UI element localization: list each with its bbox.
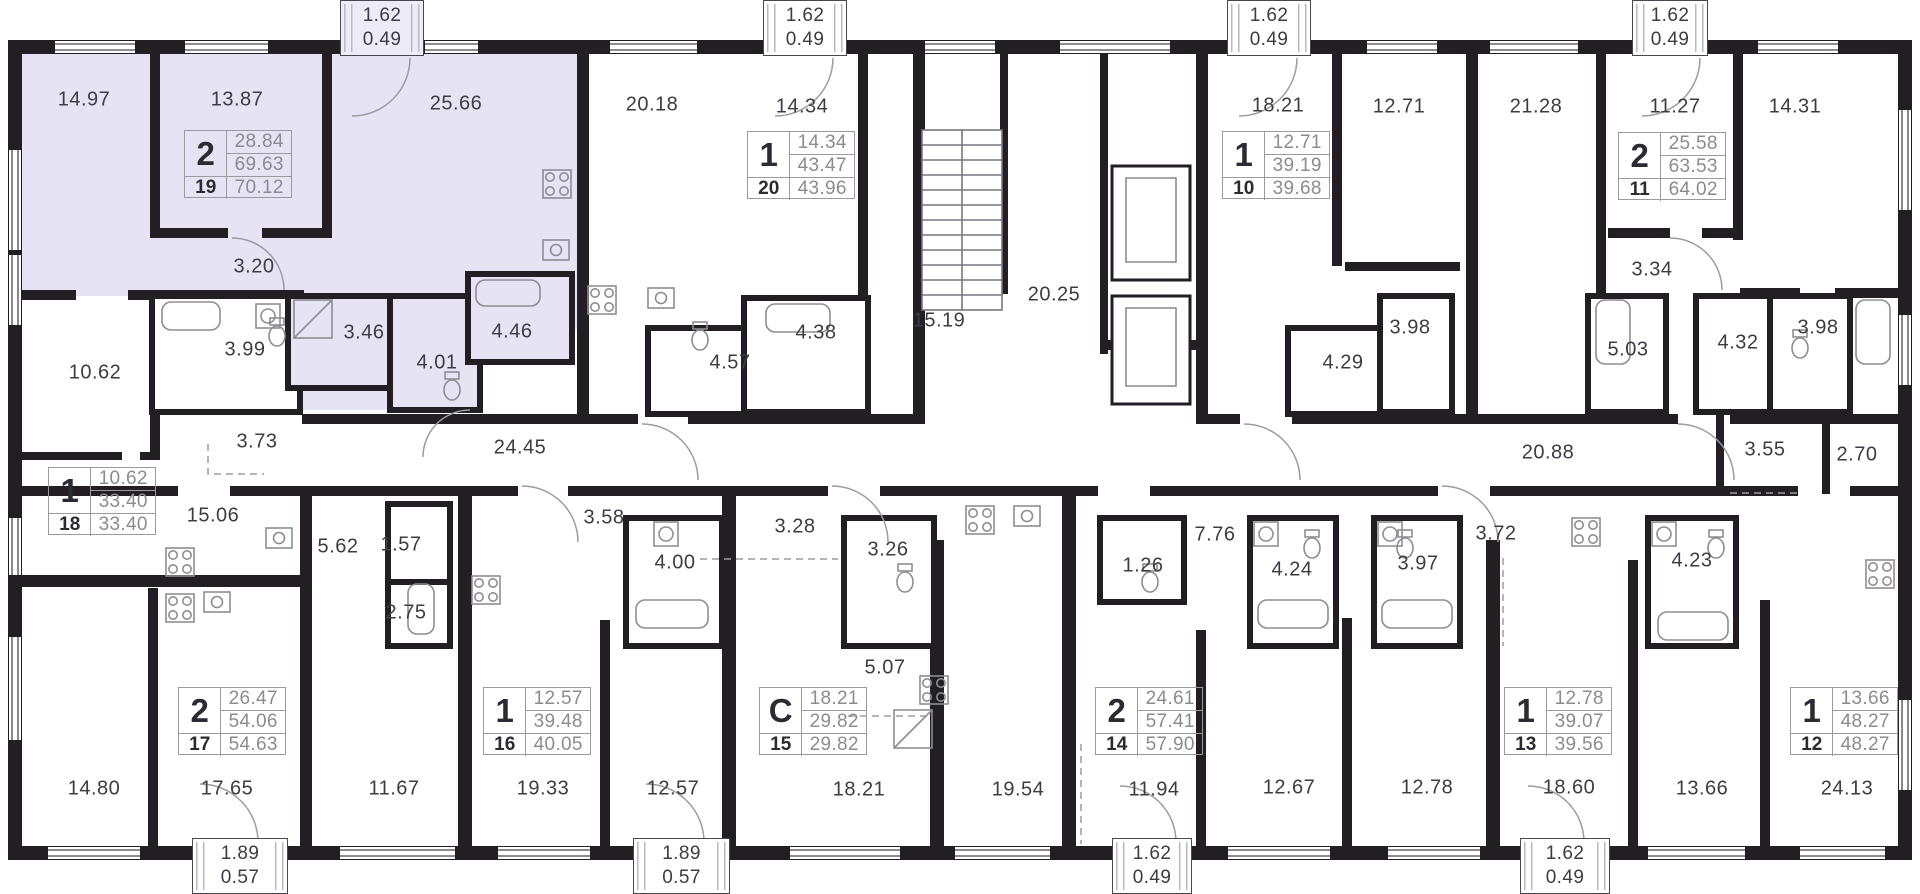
total-area: 43.96 — [790, 178, 854, 200]
apartment-number: 18 — [49, 514, 91, 536]
room-area-label: 3.20 — [234, 256, 275, 279]
balcony-area: 1.62 — [1546, 842, 1585, 866]
room-area-label: 19.33 — [517, 778, 570, 801]
rooms-count: 1 — [748, 132, 790, 178]
balcony-area: 1.62 — [786, 4, 825, 28]
room-area-label: 24.13 — [1821, 778, 1874, 801]
apartment-info-table: 113.6648.271248.27 — [1790, 687, 1898, 755]
balcony-area-box: 1.890.57 — [633, 838, 730, 894]
room-area-label: 3.34 — [1632, 259, 1673, 282]
living-area: 14.34 — [790, 132, 854, 155]
balcony-reduced-area: 0.49 — [1133, 866, 1172, 890]
room-area-label: 3.28 — [775, 516, 816, 539]
room-area-label: 3.98 — [1390, 317, 1431, 340]
rooms-count: 1 — [49, 468, 91, 514]
area-no-balcony: 39.19 — [1265, 155, 1329, 178]
room-area-label: 20.18 — [626, 94, 679, 117]
balcony-reduced-area: 0.49 — [1546, 866, 1585, 890]
room-area-label: 25.66 — [430, 93, 483, 116]
room-area-label: 4.29 — [1323, 352, 1364, 375]
elevators — [1112, 166, 1190, 404]
room-area-label: 5.62 — [318, 536, 359, 559]
balcony-area: 1.62 — [363, 4, 402, 28]
living-area: 12.78 — [1547, 688, 1611, 711]
room-area-label: 3.99 — [225, 339, 266, 362]
room-area-label: 18.21 — [1252, 95, 1305, 118]
total-area: 33.40 — [91, 514, 155, 536]
room-area-label: 21.28 — [1510, 96, 1563, 119]
room-area-label: 3.98 — [1798, 317, 1839, 340]
balcony-area-box: 1.620.49 — [763, 0, 847, 56]
room-area-label: 5.03 — [1608, 339, 1649, 362]
area-no-balcony: 39.07 — [1547, 711, 1611, 734]
apartment-info-table: 224.6157.411457.90 — [1095, 687, 1203, 755]
apartment-number: 17 — [179, 734, 221, 756]
room-area-label: 3.26 — [868, 539, 909, 562]
living-area: 25.58 — [1661, 133, 1725, 156]
room-area-label: 2.75 — [386, 602, 427, 625]
room-area-label: 4.32 — [1718, 332, 1759, 355]
room-area-label: 2.70 — [1837, 444, 1878, 467]
balcony-reduced-area: 0.49 — [363, 28, 402, 52]
balcony-area: 1.62 — [1250, 4, 1289, 28]
room-area-label: 14.80 — [68, 778, 121, 801]
room-area-label: 14.34 — [776, 96, 829, 119]
living-area: 12.57 — [526, 688, 590, 711]
balcony-area: 1.89 — [662, 842, 701, 866]
apartment-number: 15 — [760, 734, 802, 756]
balcony-area-box: 1.620.49 — [1632, 0, 1708, 56]
room-area-label: 11.27 — [1649, 96, 1700, 119]
balcony-area: 1.62 — [1133, 842, 1172, 866]
apartment-number: 11 — [1619, 179, 1661, 201]
balcony-area-box: 1.890.57 — [192, 838, 288, 894]
apartment-number: 14 — [1096, 734, 1138, 756]
apartment-info-table: 112.7839.071339.56 — [1504, 687, 1612, 755]
room-area-label: 20.25 — [1028, 284, 1081, 307]
room-area-label: 3.55 — [1745, 439, 1786, 462]
rooms-count: 2 — [1096, 688, 1138, 734]
balcony-reduced-area: 0.57 — [221, 866, 260, 890]
apartment-info-table: 112.7139.191039.68 — [1222, 131, 1330, 199]
room-area-label: 18.21 — [833, 779, 886, 802]
apartment-info-table: 114.3443.472043.96 — [747, 131, 855, 199]
balcony-area: 1.89 — [221, 842, 260, 866]
room-area-label: 17.65 — [201, 778, 254, 801]
area-no-balcony: 43.47 — [790, 155, 854, 178]
rooms-count: 2 — [185, 131, 227, 177]
rooms-count: 1 — [1223, 132, 1265, 178]
room-area-label: 3.97 — [1398, 553, 1439, 576]
room-area-label: 4.38 — [796, 322, 837, 345]
area-no-balcony: 54.06 — [221, 711, 285, 734]
balcony-area-box: 1.620.49 — [1227, 0, 1311, 56]
balcony-area-box: 1.620.49 — [1520, 838, 1610, 894]
balcony-reduced-area: 0.57 — [662, 866, 701, 890]
balcony-area-box: 1.620.49 — [340, 0, 424, 56]
total-area: 39.56 — [1547, 734, 1611, 756]
living-area: 18.21 — [802, 688, 866, 711]
apartment-number: 12 — [1791, 734, 1833, 756]
room-area-label: 18.60 — [1543, 777, 1596, 800]
apartment-info-table: 112.5739.481640.05 — [483, 687, 591, 755]
area-no-balcony: 39.48 — [526, 711, 590, 734]
room-area-label: 4.01 — [417, 352, 458, 375]
room-area-label: 14.31 — [1769, 96, 1822, 119]
rooms-count: 2 — [1619, 133, 1661, 179]
room-area-label: 12.67 — [1263, 777, 1316, 800]
living-area: 10.62 — [91, 468, 155, 491]
room-area-label: 4.24 — [1272, 559, 1313, 582]
apartment-number: 20 — [748, 178, 790, 200]
room-area-label: 1.57 — [381, 534, 422, 557]
balcony-reduced-area: 0.49 — [1250, 28, 1289, 52]
apartment-info-table: 228.8469.631970.12 — [184, 130, 292, 198]
total-area: 40.05 — [526, 734, 590, 756]
room-area-label: 4.46 — [492, 321, 533, 344]
area-no-balcony: 63.53 — [1661, 156, 1725, 179]
room-area-label: 3.46 — [344, 322, 385, 345]
room-area-label: 12.78 — [1401, 777, 1454, 800]
area-no-balcony: 48.27 — [1833, 711, 1897, 734]
balcony-reduced-area: 0.49 — [1651, 28, 1690, 52]
room-area-label: 11.94 — [1128, 779, 1179, 802]
room-area-label: 4.57 — [710, 352, 751, 375]
living-area: 24.61 — [1138, 688, 1202, 711]
floor-plan: 14.9713.8725.6620.1814.3415.1920.2518.21… — [0, 0, 1920, 894]
rooms-count: 1 — [484, 688, 526, 734]
balcony-area-box: 1.620.49 — [1112, 838, 1192, 894]
living-area: 12.71 — [1265, 132, 1329, 155]
room-area-label: 11.67 — [368, 778, 419, 801]
living-area: 13.66 — [1833, 688, 1897, 711]
rooms-count: 1 — [1791, 688, 1833, 734]
rooms-count: 2 — [179, 688, 221, 734]
room-area-label: 15.19 — [913, 310, 966, 333]
room-area-label: 10.62 — [69, 362, 122, 385]
floor-plan-page: { "plan": { "wall_color": "#221e24", "hi… — [0, 0, 1920, 894]
total-area: 39.68 — [1265, 178, 1329, 200]
rooms-count: C — [760, 688, 802, 734]
room-area-label: 12.57 — [647, 778, 700, 801]
room-area-label: 7.76 — [1195, 524, 1236, 547]
room-area-label: 13.87 — [211, 89, 264, 112]
balcony-reduced-area: 0.49 — [786, 28, 825, 52]
living-area: 26.47 — [221, 688, 285, 711]
room-area-label: 3.73 — [237, 431, 278, 454]
apartment-info-table: 225.5863.531164.02 — [1618, 132, 1726, 200]
apartment-number: 16 — [484, 734, 526, 756]
room-area-label: 4.00 — [655, 552, 696, 575]
total-area: 57.90 — [1138, 734, 1202, 756]
room-area-label: 5.07 — [865, 657, 906, 680]
room-area-label: 20.88 — [1522, 442, 1575, 465]
rooms-count: 1 — [1505, 688, 1547, 734]
room-area-label: 3.58 — [584, 507, 625, 530]
room-area-label: 1.26 — [1123, 555, 1164, 578]
room-area-label: 19.54 — [992, 779, 1045, 802]
room-area-label: 13.66 — [1676, 778, 1729, 801]
room-area-label: 12.71 — [1373, 96, 1426, 119]
room-area-label: 14.97 — [58, 89, 111, 112]
area-no-balcony: 33.40 — [91, 491, 155, 514]
apartment-info-table: C18.2129.821529.82 — [759, 687, 867, 755]
room-area-label: 24.45 — [494, 437, 547, 460]
total-area: 70.12 — [227, 177, 291, 199]
area-no-balcony: 29.82 — [802, 711, 866, 734]
area-no-balcony: 69.63 — [227, 154, 291, 177]
room-area-label: 4.23 — [1672, 550, 1713, 573]
room-area-label: 15.06 — [187, 505, 240, 528]
apartment-number: 19 — [185, 177, 227, 199]
apartment-info-table: 226.4754.061754.63 — [178, 687, 286, 755]
total-area: 29.82 — [802, 734, 866, 756]
total-area: 48.27 — [1833, 734, 1897, 756]
total-area: 54.63 — [221, 734, 285, 756]
stairs — [922, 130, 1002, 310]
apartment-number: 10 — [1223, 178, 1265, 200]
total-area: 64.02 — [1661, 179, 1725, 201]
balcony-area: 1.62 — [1651, 4, 1690, 28]
living-area: 28.84 — [227, 131, 291, 154]
apartment-info-table: 110.6233.401833.40 — [48, 467, 156, 535]
room-area-label: 3.72 — [1476, 523, 1517, 546]
apartment-number: 13 — [1505, 734, 1547, 756]
area-no-balcony: 57.41 — [1138, 711, 1202, 734]
